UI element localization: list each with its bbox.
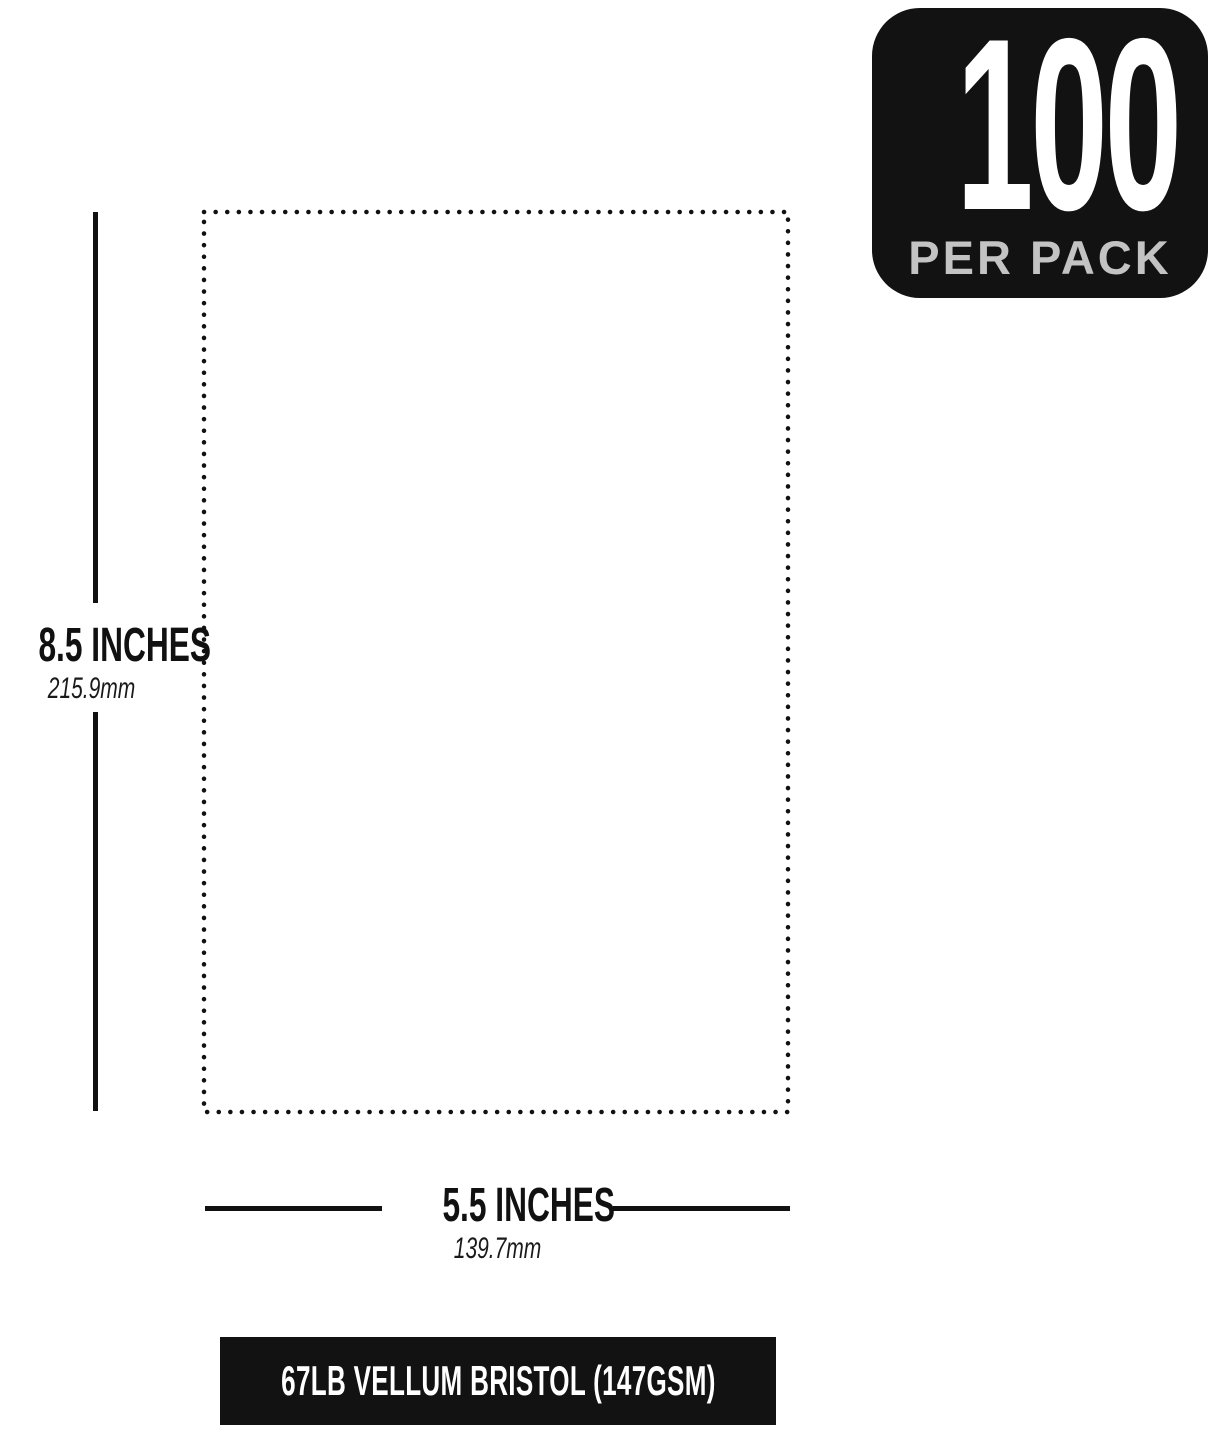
width-label-inches: 5.5 INCHES <box>398 1182 598 1230</box>
width-measure-line-right <box>613 1206 790 1211</box>
badge-label: PER PACK <box>872 230 1208 285</box>
per-pack-badge: 100 PER PACK <box>872 8 1208 298</box>
height-mm-text: 215.9mm <box>48 674 136 704</box>
height-measure-line-upper <box>93 212 98 603</box>
width-label-mm: 139.7mm <box>398 1234 598 1264</box>
paper-type-label: 67LB VELLUM BRISTOL (147GSM) <box>281 1357 716 1405</box>
product-infographic: 8.5 INCHES 215.9mm 5.5 INCHES 139.7mm 10… <box>0 0 1214 1432</box>
width-measure-line-left <box>205 1206 382 1211</box>
badge-count-text: 100 <box>956 24 1179 224</box>
height-inches-text: 8.5 INCHES <box>38 622 211 670</box>
height-label-mm: 215.9mm <box>0 674 190 704</box>
width-mm-text: 139.7mm <box>454 1234 542 1264</box>
height-dimension-label: 8.5 INCHES 215.9mm <box>0 622 190 704</box>
height-label-inches: 8.5 INCHES <box>0 622 190 670</box>
paper-outline <box>200 208 792 1116</box>
width-inches-text: 5.5 INCHES <box>442 1182 615 1230</box>
height-measure-line-lower <box>93 712 98 1111</box>
paper-type-bar: 67LB VELLUM BRISTOL (147GSM) <box>220 1337 776 1425</box>
badge-count: 100 <box>872 24 1208 224</box>
width-dimension-label: 5.5 INCHES 139.7mm <box>398 1182 598 1264</box>
